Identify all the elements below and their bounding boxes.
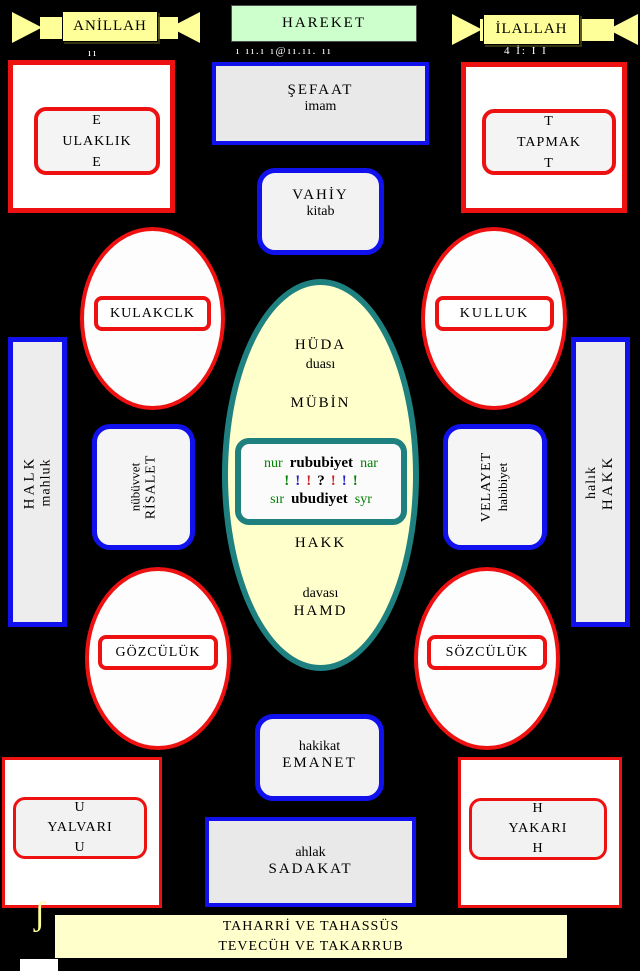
rububiyet-label: rububiyet <box>290 455 353 472</box>
duasi-label: duası <box>228 357 413 373</box>
vahiy-subtitle: kitab <box>307 204 335 220</box>
velayet-line: habibiyet <box>495 452 511 522</box>
sir-label: sır <box>270 492 284 508</box>
sozculuk-oval: SÖZCÜLÜK <box>414 567 560 750</box>
kulluk-oval: KULLUK <box>421 227 567 410</box>
punct-glyph: ! <box>306 473 311 490</box>
core-box: nur rububiyet nar !!!?!!! sır ubudiyet s… <box>235 438 407 525</box>
sefaat-title: ŞEFAAT <box>288 82 354 99</box>
tapmak-line: T <box>544 153 554 174</box>
gozculuk-label: GÖZCÜLÜK <box>98 635 218 670</box>
punct-glyph: ? <box>317 473 325 490</box>
ribbon-anillah-label: ANİLLAH <box>62 11 158 42</box>
yalvari-line: U <box>74 798 85 818</box>
risalet-box: nübüvvet RİSALET <box>92 424 195 550</box>
kulakclk-oval: KULAKCLK <box>80 227 225 410</box>
core-punctuation-row: !!!?!!! <box>284 473 358 490</box>
hakk-bar-line: HAKK <box>600 454 617 509</box>
tapmak-inner-box: T TAPMAK T <box>482 109 616 175</box>
punct-glyph: ! <box>353 473 358 490</box>
hakk-bar-line: halık <box>584 454 600 509</box>
kulluk-label: KULLUK <box>435 296 554 331</box>
yalvari-box: U YALVARI U <box>2 757 162 908</box>
punct-glyph: ! <box>295 473 300 490</box>
nar-label: nar <box>360 456 378 472</box>
clipped-text-fragment: ı ıı.ı ı@ıı.ıı. ıı <box>236 45 332 57</box>
yakari-line: YAKARI <box>509 819 568 839</box>
ulaklik-inner-box: E ULAKLIK E <box>34 107 160 175</box>
ulaklik-line: E <box>92 152 102 173</box>
mark-decoration-icon: ¬ <box>566 895 574 911</box>
yalvari-line: YALVARI <box>47 818 112 838</box>
tapmak-box: T TAPMAK T <box>461 62 627 213</box>
risalet-line: nübüvvet <box>128 455 144 520</box>
center-ellipse: HÜDA duası MÜBİN nur rububiyet nar !!!?!… <box>222 279 419 671</box>
ribbon-ilallah-label: İLALLAH <box>483 14 580 45</box>
clipped-text-fragment: 4 İ: I I <box>504 45 548 57</box>
diagram-canvas: ANİLLAH HAREKET İLALLAH ıı ı ıı.ı ı@ıı.ı… <box>0 0 640 971</box>
punct-glyph: ! <box>284 473 289 490</box>
brace-decoration-icon: ʃ <box>34 896 45 934</box>
bottom-banner-line: TAHARRİ VE TAHASSÜS <box>223 917 400 937</box>
velayet-line: VELAYET <box>479 452 495 522</box>
nur-label: nur <box>264 456 283 472</box>
gozculuk-oval: GÖZCÜLÜK <box>85 567 231 750</box>
punct-glyph: ! <box>331 473 336 490</box>
ulaklik-line: E <box>92 110 102 131</box>
yakari-line: H <box>532 839 543 859</box>
davasi-label: davası <box>228 586 413 602</box>
hakk-label: HAKK <box>228 535 413 552</box>
risalet-line: RİSALET <box>144 455 160 520</box>
vahiy-title: VAHİY <box>292 187 348 204</box>
emanet-box: hakikat EMANET <box>255 714 384 801</box>
velayet-box: VELAYET habibiyet <box>443 424 547 550</box>
kulakclk-label: KULAKCLK <box>94 296 211 331</box>
huda-label: HÜDA <box>228 337 413 354</box>
tapmak-line: TAPMAK <box>517 132 581 153</box>
hareket-box: HAREKET <box>231 5 417 42</box>
halk-bar: HALK mahluk <box>8 337 67 627</box>
sefaat-box: ŞEFAAT imam <box>212 62 429 145</box>
ulaklik-box: E ULAKLIK E <box>8 60 175 213</box>
punct-glyph: ! <box>342 473 347 490</box>
emanet-subtitle: hakikat <box>299 739 340 755</box>
sadakat-box: ahlak SADAKAT <box>205 817 416 907</box>
ribbon-right-tail-icon <box>452 14 482 45</box>
ubudiyet-label: ubudiyet <box>291 491 348 508</box>
yalvari-inner-box: U YALVARI U <box>13 797 147 859</box>
vahiy-box: VAHİY kitab <box>257 168 384 255</box>
emanet-title: EMANET <box>282 755 357 772</box>
sadakat-title: SADAKAT <box>268 861 352 878</box>
mubin-label: MÜBİN <box>228 395 413 412</box>
clipped-white-strip <box>20 959 58 971</box>
hamd-label: HAMD <box>228 603 413 620</box>
sadakat-subtitle: ahlak <box>295 845 325 861</box>
bottom-banner: TAHARRİ VE TAHASSÜS TEVECÜH VE TAKARRUB <box>55 915 567 958</box>
yakari-line: H <box>532 799 543 819</box>
yakari-box: H YAKARI H <box>458 757 622 908</box>
syr-label: syr <box>355 492 372 508</box>
halk-bar-line: HALK <box>21 455 38 509</box>
tapmak-line: T <box>544 111 554 132</box>
halk-bar-line: mahluk <box>38 455 54 509</box>
clipped-text-fragment: ıı <box>88 47 98 59</box>
hakk-bar: halık HAKK <box>571 337 630 627</box>
ulaklik-line: ULAKLIK <box>62 131 131 152</box>
bottom-banner-line: TEVECÜH VE TAKARRUB <box>218 937 403 957</box>
ribbon-left-tail-icon <box>12 12 42 43</box>
yakari-inner-box: H YAKARI H <box>469 798 607 860</box>
sozculuk-label: SÖZCÜLÜK <box>427 635 547 670</box>
sefaat-subtitle: imam <box>305 99 337 115</box>
yalvari-line: U <box>74 838 85 858</box>
